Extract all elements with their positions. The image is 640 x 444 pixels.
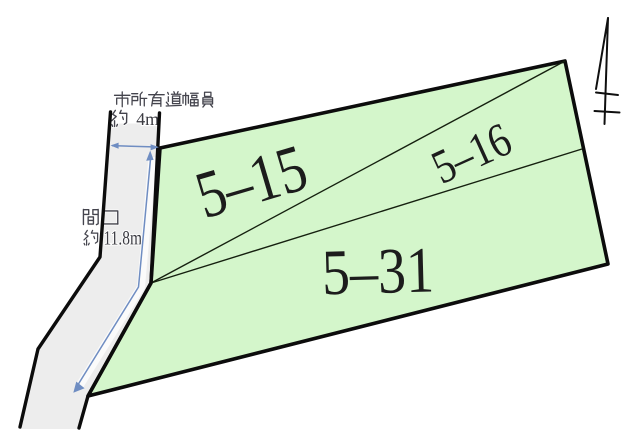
svg-text:4m: 4m xyxy=(136,109,159,129)
svg-text:5–31: 5–31 xyxy=(321,235,435,310)
svg-text:11.8m: 11.8m xyxy=(103,227,142,249)
